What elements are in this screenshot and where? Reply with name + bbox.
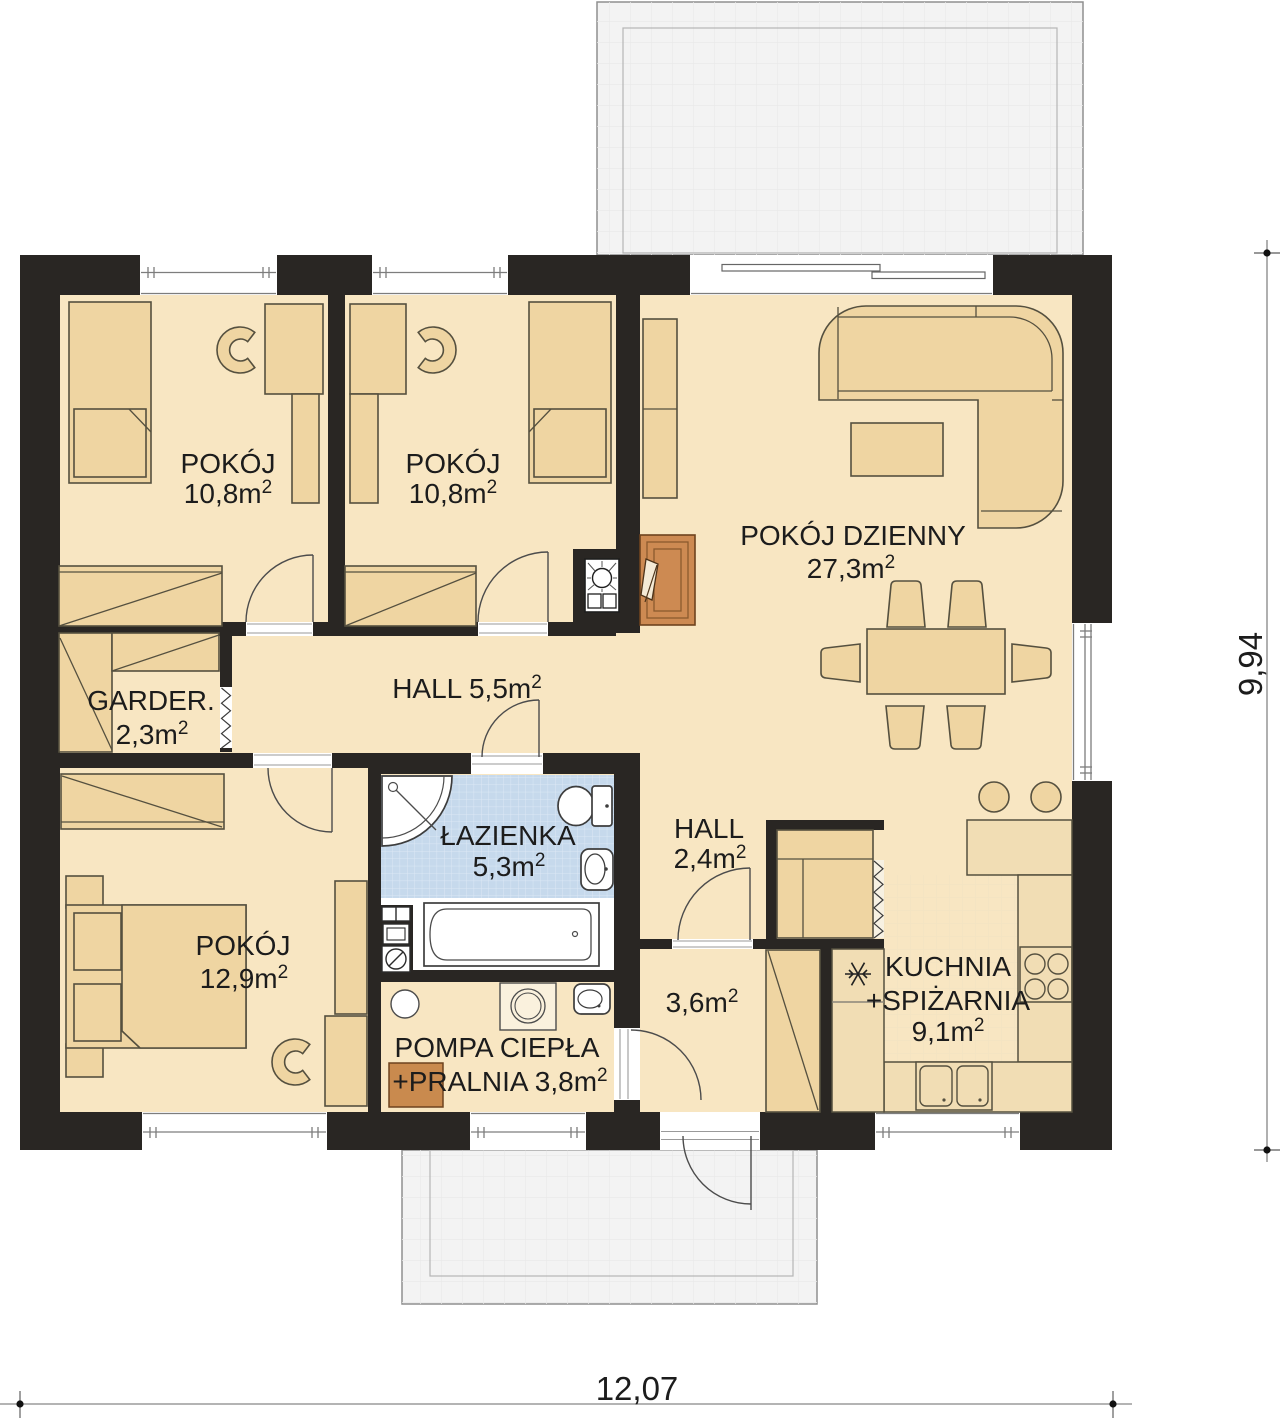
svg-text:POKÓJ: POKÓJ xyxy=(181,448,276,479)
svg-text:HALL: HALL xyxy=(674,813,744,844)
svg-text:2,4m2: 2,4m2 xyxy=(674,842,747,874)
svg-text:POKÓJ: POKÓJ xyxy=(196,930,291,961)
svg-text:12,9m2: 12,9m2 xyxy=(200,962,288,994)
svg-text:12,07: 12,07 xyxy=(596,1370,679,1407)
svg-text:5,3m2: 5,3m2 xyxy=(473,850,546,882)
svg-text:+PRALNIA 3,8m2: +PRALNIA 3,8m2 xyxy=(392,1065,607,1097)
svg-text:2,3m2: 2,3m2 xyxy=(116,718,189,750)
svg-text:3,6m2: 3,6m2 xyxy=(666,986,739,1018)
svg-text:9,1m2: 9,1m2 xyxy=(912,1015,985,1047)
svg-text:9,94: 9,94 xyxy=(1232,632,1269,696)
svg-text:POKÓJ: POKÓJ xyxy=(406,448,501,479)
svg-text:ŁAZIENKA: ŁAZIENKA xyxy=(440,820,576,851)
svg-text:KUCHNIA: KUCHNIA xyxy=(885,951,1011,982)
svg-text:27,3m2: 27,3m2 xyxy=(807,552,895,584)
svg-text:+SPIŻARNIA: +SPIŻARNIA xyxy=(866,985,1030,1016)
svg-text:HALL 5,5m2: HALL 5,5m2 xyxy=(392,672,542,704)
svg-text:POMPA CIEPŁA: POMPA CIEPŁA xyxy=(395,1032,600,1063)
svg-text:10,8m2: 10,8m2 xyxy=(184,477,272,509)
svg-text:10,8m2: 10,8m2 xyxy=(409,477,497,509)
svg-text:POKÓJ DZIENNY: POKÓJ DZIENNY xyxy=(740,520,966,551)
svg-text:GARDER.: GARDER. xyxy=(87,685,215,716)
